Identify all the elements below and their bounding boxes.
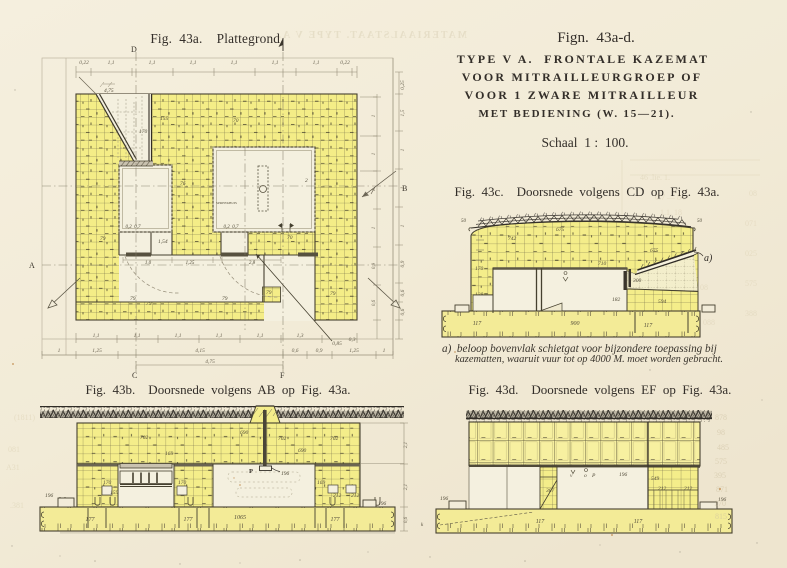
svg-text:Fig. 43b. Doorsnede volge: Fig. 43b. Doorsnede volgens AB op Fig. 4… [85, 382, 350, 397]
svg-text:P: P [249, 468, 253, 475]
svg-text:Fig. 43c. Doorsnede volge: Fig. 43c. Doorsnede volgens CD op Fig. 4… [454, 184, 719, 199]
svg-text:C: C [132, 371, 137, 380]
svg-text:2,1: 2,1 [404, 484, 409, 490]
svg-text:815: 815 [715, 512, 727, 521]
svg-text:170: 170 [178, 480, 187, 486]
svg-text:485: 485 [717, 443, 729, 452]
svg-text:395: 395 [714, 471, 726, 480]
svg-text:0,6: 0,6 [404, 516, 409, 523]
svg-text:170: 170 [475, 266, 484, 272]
svg-text:1: 1 [372, 153, 377, 156]
svg-text:388: 388 [745, 309, 757, 318]
svg-text:1,1: 1,1 [313, 60, 320, 66]
svg-text:2: 2 [305, 178, 308, 184]
svg-text:79: 79 [266, 290, 272, 296]
svg-text:1,25: 1,25 [92, 348, 102, 354]
svg-text:08: 08 [700, 283, 708, 292]
svg-text:MATERIAALSTAAT. TYPE V A.: MATERIAALSTAAT. TYPE V A. [277, 30, 467, 41]
svg-text:071: 071 [745, 219, 757, 228]
svg-text:182: 182 [612, 297, 621, 303]
svg-text:50: 50 [697, 219, 703, 224]
svg-text:575: 575 [715, 457, 727, 466]
svg-text:D: D [131, 45, 137, 54]
svg-text:212: 212 [333, 493, 342, 499]
svg-text:(1811): (1811) [14, 413, 35, 422]
svg-text:155: 155 [160, 116, 169, 122]
svg-text:1: 1 [372, 227, 377, 230]
svg-text:025: 025 [745, 249, 757, 258]
svg-text:1,1: 1,1 [93, 333, 100, 339]
svg-text:575: 575 [745, 279, 757, 288]
svg-text:177: 177 [86, 517, 96, 523]
svg-text:A: A [29, 261, 35, 270]
svg-text:0,25: 0,25 [400, 80, 406, 90]
svg-text:0,9: 0,9 [372, 262, 377, 269]
svg-text:742: 742 [508, 235, 517, 242]
svg-text:169: 169 [165, 451, 174, 457]
svg-text:212: 212 [658, 486, 667, 492]
svg-text:VOOR MITRAILLEURGROEP OF: VOOR MITRAILLEURGROEP OF [462, 70, 703, 84]
svg-text:1: 1 [58, 348, 61, 354]
svg-text:549: 549 [651, 475, 660, 482]
svg-text:594: 594 [658, 298, 667, 305]
svg-text:1,1: 1,1 [134, 333, 141, 339]
svg-text:70: 70 [287, 235, 293, 241]
svg-text:196: 196 [440, 496, 449, 502]
svg-text:170: 170 [103, 480, 112, 486]
svg-text:1,1: 1,1 [257, 333, 264, 339]
svg-text:117: 117 [644, 323, 654, 329]
svg-text:871: 871 [716, 485, 728, 494]
svg-text:1: 1 [400, 224, 406, 227]
svg-text:o: o [584, 473, 587, 479]
svg-text:117: 117 [473, 321, 483, 327]
svg-text:Fig. 43a. Plattegrond.: Fig. 43a. Plattegrond. [150, 31, 283, 46]
svg-text:1,25: 1,25 [349, 348, 359, 354]
svg-text:0,2 0,7: 0,2 0,7 [224, 225, 240, 230]
svg-text:1,54: 1,54 [158, 238, 168, 245]
svg-text:1065: 1065 [234, 515, 246, 521]
svg-text:196: 196 [281, 471, 290, 477]
svg-text:900: 900 [571, 321, 580, 327]
svg-text:088: 088 [703, 318, 715, 327]
svg-text:0,6: 0,6 [400, 308, 406, 315]
svg-text:70: 70 [233, 118, 239, 124]
svg-text:0,6: 0,6 [292, 348, 299, 354]
svg-text:0,22: 0,22 [79, 60, 89, 66]
svg-text:177: 177 [331, 517, 341, 523]
svg-text:1,1: 1,1 [175, 333, 182, 339]
svg-text:VOOR 1 ZWARE MITRAILLEUR: VOOR 1 ZWARE MITRAILLEUR [465, 88, 700, 102]
svg-text:A31: A31 [6, 463, 20, 472]
svg-text:1,1: 1,1 [216, 333, 223, 339]
svg-text:2,1: 2,1 [404, 442, 409, 448]
svg-text:2,8: 2,8 [249, 261, 256, 266]
svg-text:0,2 0,7: 0,2 0,7 [126, 225, 142, 230]
svg-text:Fign. 43a-d.: Fign. 43a-d. [557, 29, 635, 46]
svg-text:79: 79 [222, 296, 228, 302]
svg-text:Fig. 43d. Doorsnede volge: Fig. 43d. Doorsnede volgens EF op Fig. 4… [469, 382, 732, 397]
svg-text:1,1: 1,1 [231, 60, 238, 66]
svg-text:MET BEDIENING (W. 15—21).: MET BEDIENING (W. 15—21). [479, 108, 676, 120]
svg-text:1: 1 [383, 348, 386, 354]
svg-text:0,6: 0,6 [372, 299, 377, 306]
svg-text:710: 710 [598, 261, 607, 267]
svg-text:1,1: 1,1 [149, 60, 156, 66]
svg-text:SPREEKBUIS: SPREEKBUIS [216, 201, 237, 205]
svg-text:1: 1 [400, 186, 406, 189]
svg-text:76: 76 [180, 181, 186, 187]
svg-text:169: 169 [317, 480, 326, 486]
svg-text:878: 878 [715, 413, 727, 422]
svg-text:690: 690 [298, 448, 307, 454]
svg-text:79: 79 [100, 236, 106, 242]
svg-text:300: 300 [632, 278, 642, 284]
svg-text:a): a) [704, 253, 713, 264]
svg-text:196: 196 [45, 493, 54, 499]
svg-text:702: 702 [140, 435, 149, 441]
svg-text:0,3: 0,3 [349, 337, 356, 343]
svg-text:4,75: 4,75 [104, 87, 114, 94]
svg-text:212: 212 [351, 493, 360, 499]
svg-text:79: 79 [146, 301, 152, 307]
svg-text:081: 081 [8, 445, 20, 454]
svg-text:212: 212 [684, 486, 693, 492]
svg-text:690: 690 [240, 430, 249, 436]
svg-text:1,1: 1,1 [108, 60, 115, 66]
svg-text:0,22: 0,22 [340, 60, 350, 66]
svg-text:177: 177 [184, 517, 194, 523]
svg-text:kazematten, waaruit vuur tot o: kazematten, waaruit vuur tot op 4000 M. … [455, 354, 723, 365]
svg-text:1,0: 1,0 [145, 261, 152, 266]
svg-text:TYPE V A. FRONTALE KAZEMAT: TYPE V A. FRONTALE KAZEMAT [457, 52, 710, 66]
svg-text:.381: .381 [10, 501, 24, 510]
svg-text:1,5: 1,5 [400, 109, 406, 116]
svg-text:117: 117 [634, 519, 644, 525]
svg-text:196: 196 [619, 472, 628, 478]
svg-text:4,75: 4,75 [205, 358, 215, 365]
svg-text:1: 1 [372, 115, 377, 118]
svg-text:08: 08 [749, 189, 757, 198]
svg-text:P: P [591, 473, 596, 479]
svg-text:117: 117 [536, 519, 546, 525]
svg-text:1,25: 1,25 [186, 261, 195, 266]
svg-text:0,85: 0,85 [332, 341, 342, 347]
svg-text:79: 79 [130, 296, 136, 302]
svg-text:170: 170 [139, 129, 148, 135]
svg-text:79: 79 [330, 291, 336, 297]
svg-text:1,1: 1,1 [272, 60, 279, 66]
svg-text:F: F [280, 371, 285, 380]
svg-text:170: 170 [714, 499, 726, 508]
svg-text:0,9: 0,9 [400, 260, 406, 267]
svg-text:1,3: 1,3 [297, 333, 304, 339]
svg-text:Schaal 1 : 100.: Schaal 1 : 100. [542, 135, 629, 150]
svg-text:98: 98 [717, 428, 725, 437]
svg-text:4,15: 4,15 [195, 347, 205, 354]
svg-text:0,6: 0,6 [400, 289, 406, 296]
svg-text:46 .lie. 1.: 46 .lie. 1. [640, 173, 670, 182]
svg-text:387: 387 [545, 488, 555, 494]
svg-text:1: 1 [400, 148, 406, 151]
svg-text:702: 702 [330, 436, 339, 442]
svg-text:675: 675 [556, 227, 565, 233]
svg-text:0,9: 0,9 [316, 348, 323, 354]
svg-text:702: 702 [278, 436, 287, 442]
svg-text:50: 50 [461, 219, 467, 224]
svg-text:159: 159 [110, 490, 119, 496]
svg-text:675: 675 [650, 248, 659, 254]
svg-text:196: 196 [378, 501, 387, 507]
svg-text:1,1: 1,1 [190, 60, 197, 66]
